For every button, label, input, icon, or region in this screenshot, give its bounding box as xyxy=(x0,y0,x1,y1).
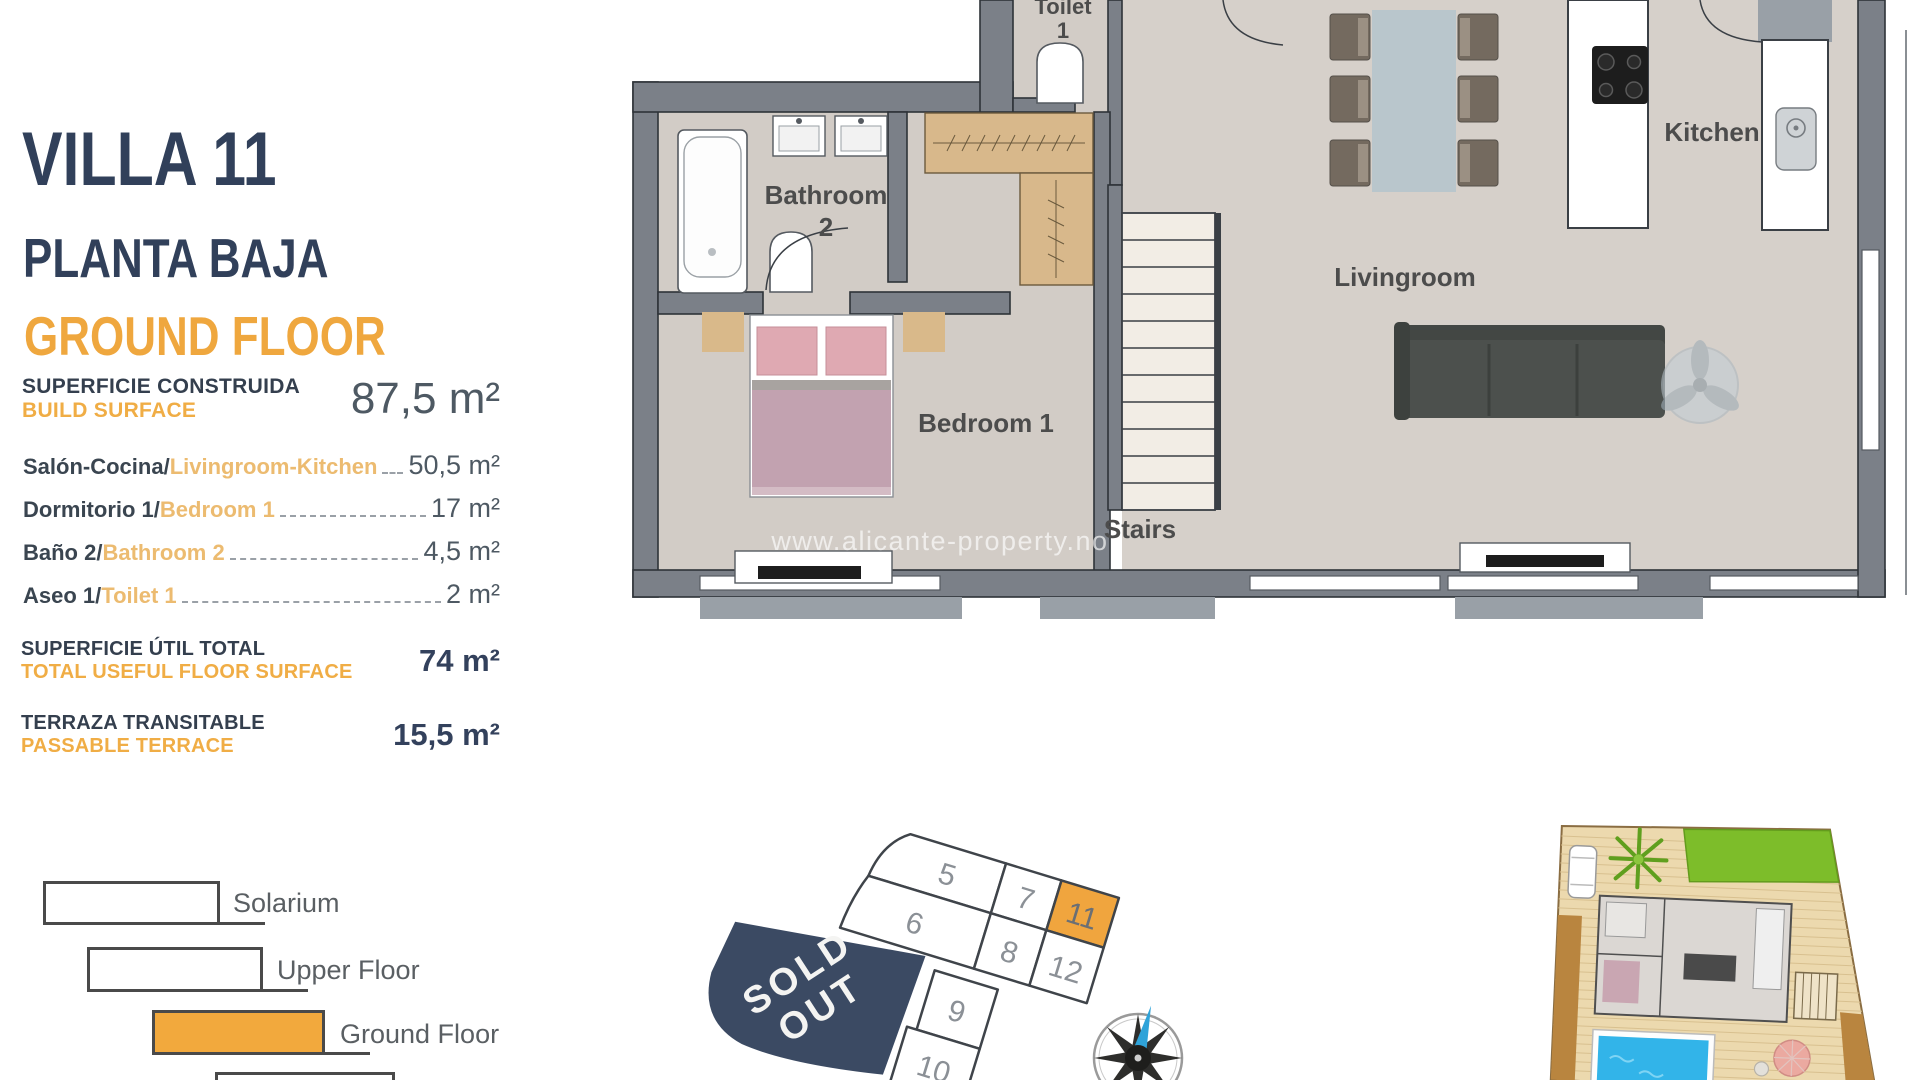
label-bathroom: Bathroom xyxy=(765,180,888,210)
label-stairs: Stairs xyxy=(1104,514,1176,544)
kitchen-appliance xyxy=(1758,0,1832,42)
living-tv-cabinet xyxy=(1460,543,1630,572)
kitchen-counter xyxy=(1762,40,1828,230)
plot-map: 5 6 7 8 9 10 11 12 SOLD OUT xyxy=(693,790,1118,1080)
floor-plan-graphics: Toilet 1 Bathroom 2 Bedroom 1 Stairs Liv… xyxy=(0,0,1920,1080)
stairs xyxy=(1122,213,1215,510)
exterior-stairs xyxy=(1794,972,1838,1020)
sofa xyxy=(1394,322,1665,420)
label-toilet-num: 1 xyxy=(1057,18,1069,43)
pool xyxy=(1590,1030,1715,1080)
compass-icon xyxy=(1094,1004,1182,1080)
watermark: www.alicante-property.no xyxy=(770,526,1108,556)
lawn xyxy=(1682,824,1841,888)
nightstand xyxy=(903,312,945,352)
bathroom-toilet xyxy=(770,232,812,292)
label-kitchen: Kitchen xyxy=(1664,117,1759,147)
toilet1-fixture xyxy=(1037,43,1083,103)
label-livingroom: Livingroom xyxy=(1334,262,1476,292)
brochure-page: VILLA 11 PLANTA BAJA GROUND FLOOR SUPERF… xyxy=(0,0,1920,1080)
site-plan xyxy=(1543,818,1899,1080)
floor-plan: Toilet 1 Bathroom 2 Bedroom 1 Stairs Liv… xyxy=(633,0,1906,619)
label-bathroom-num: 2 xyxy=(819,212,833,242)
dining-table xyxy=(1372,10,1456,192)
label-bedroom: Bedroom 1 xyxy=(918,408,1054,438)
window-sill xyxy=(700,597,1703,619)
bed xyxy=(750,315,893,497)
car-icon xyxy=(1568,845,1597,898)
label-toilet: Toilet xyxy=(1034,0,1092,19)
kitchen-island xyxy=(1568,0,1648,228)
nightstand xyxy=(702,312,744,352)
stairs-rail xyxy=(1215,213,1221,510)
bathtub xyxy=(678,130,747,293)
site-house xyxy=(1595,896,1792,1022)
